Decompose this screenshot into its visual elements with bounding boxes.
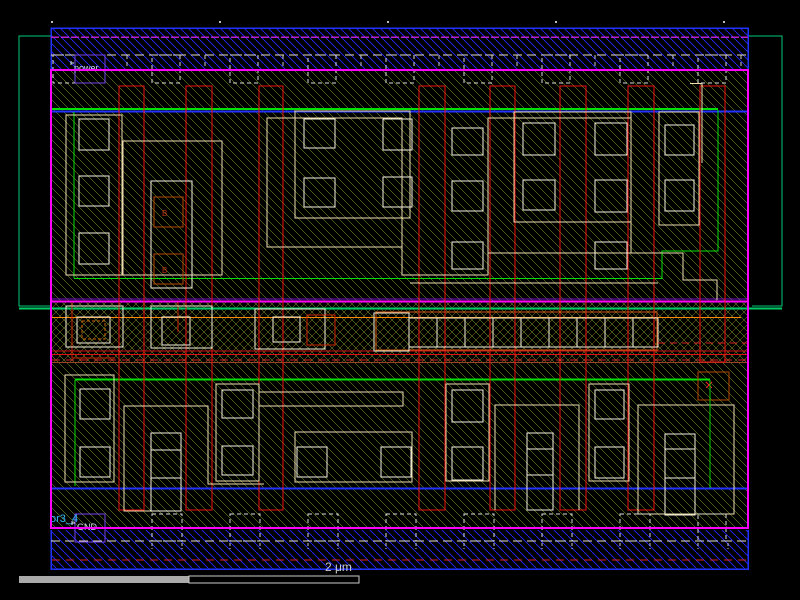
svg-text:2 μm: 2 μm xyxy=(325,560,352,574)
svg-text:B: B xyxy=(162,266,167,275)
svg-text:power: power xyxy=(74,63,99,73)
svg-text:B: B xyxy=(162,209,167,218)
